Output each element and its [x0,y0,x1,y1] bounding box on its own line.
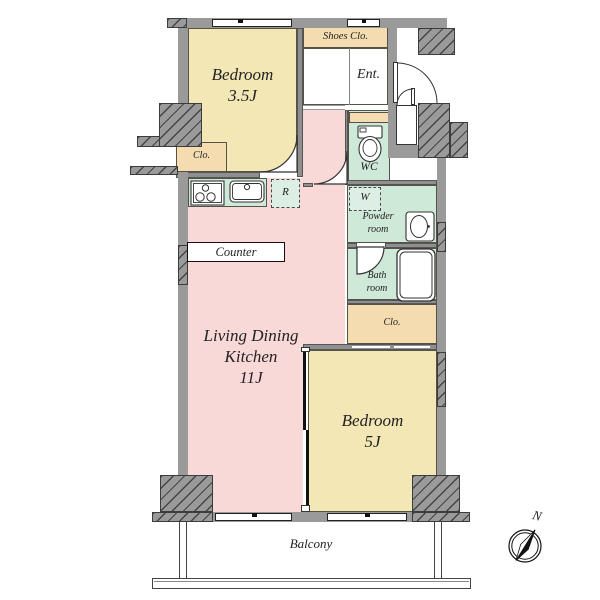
counter-text: Counter [216,245,257,260]
bathtub-icon [397,249,435,301]
hallway-door [314,151,347,184]
compass-icon [509,528,541,563]
stove-icon [191,181,224,205]
entrance-door-swing [397,63,437,103]
powder-sink-icon [406,212,434,241]
plan-linework [0,0,600,600]
bedroom-35-door [260,135,297,172]
counter-label-box: Counter [187,242,285,262]
kitchen-sink-icon [230,181,264,202]
toilet-icon [358,126,382,162]
meter-door-swing [397,89,413,105]
floor-plan: Bedroom 3.5J Shoes Clo. Ent. WC Clo. R W… [0,0,600,600]
bath-door [357,247,384,274]
